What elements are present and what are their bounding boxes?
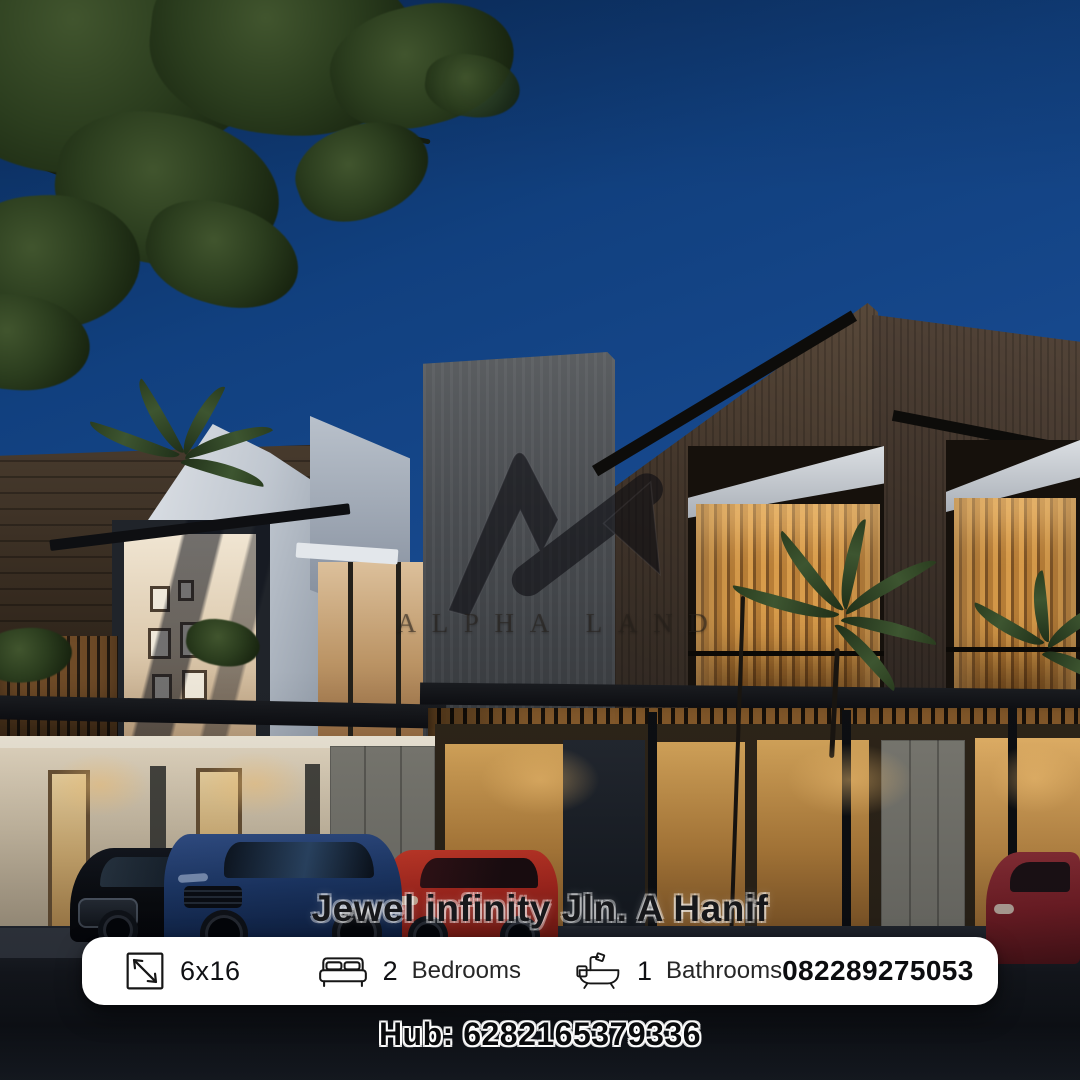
car-windshield bbox=[224, 842, 374, 878]
car-headlight bbox=[178, 873, 208, 883]
alpha-land-logo-icon bbox=[430, 446, 690, 616]
bathrooms-label: Bathrooms bbox=[666, 957, 782, 985]
watermark-brand-text: ALPHA LAND bbox=[340, 608, 780, 639]
dimensions-icon bbox=[124, 950, 166, 992]
bedrooms-count: 2 bbox=[383, 956, 398, 987]
hub-contact: Hub: 6282165379336 bbox=[0, 1016, 1080, 1053]
wood-slat-wall bbox=[954, 498, 1076, 700]
bathrooms-count: 1 bbox=[637, 956, 652, 987]
bathrooms-group: 1 Bathrooms bbox=[575, 951, 782, 991]
bathtub-icon bbox=[575, 951, 623, 991]
car-windows bbox=[420, 858, 538, 888]
flyer-canvas: ALPHA LAND Jewel infinity Jln. A Hanif 6… bbox=[0, 0, 1080, 1080]
phone-number: 082289275053 bbox=[782, 955, 974, 987]
size-value: 6x16 bbox=[180, 956, 241, 987]
bed-icon bbox=[317, 952, 369, 990]
info-bar: 6x16 2 Bedrooms 1 Bathrooms 0 bbox=[82, 937, 998, 1005]
size-group: 6x16 bbox=[124, 950, 241, 992]
unit-b-upper-window bbox=[946, 440, 1080, 708]
listing-title: Jewel infinity Jln. A Hanif bbox=[0, 888, 1080, 930]
bedrooms-group: 2 Bedrooms bbox=[317, 952, 521, 990]
bedrooms-label: Bedrooms bbox=[412, 957, 521, 985]
brand-watermark: ALPHA LAND bbox=[420, 446, 700, 676]
